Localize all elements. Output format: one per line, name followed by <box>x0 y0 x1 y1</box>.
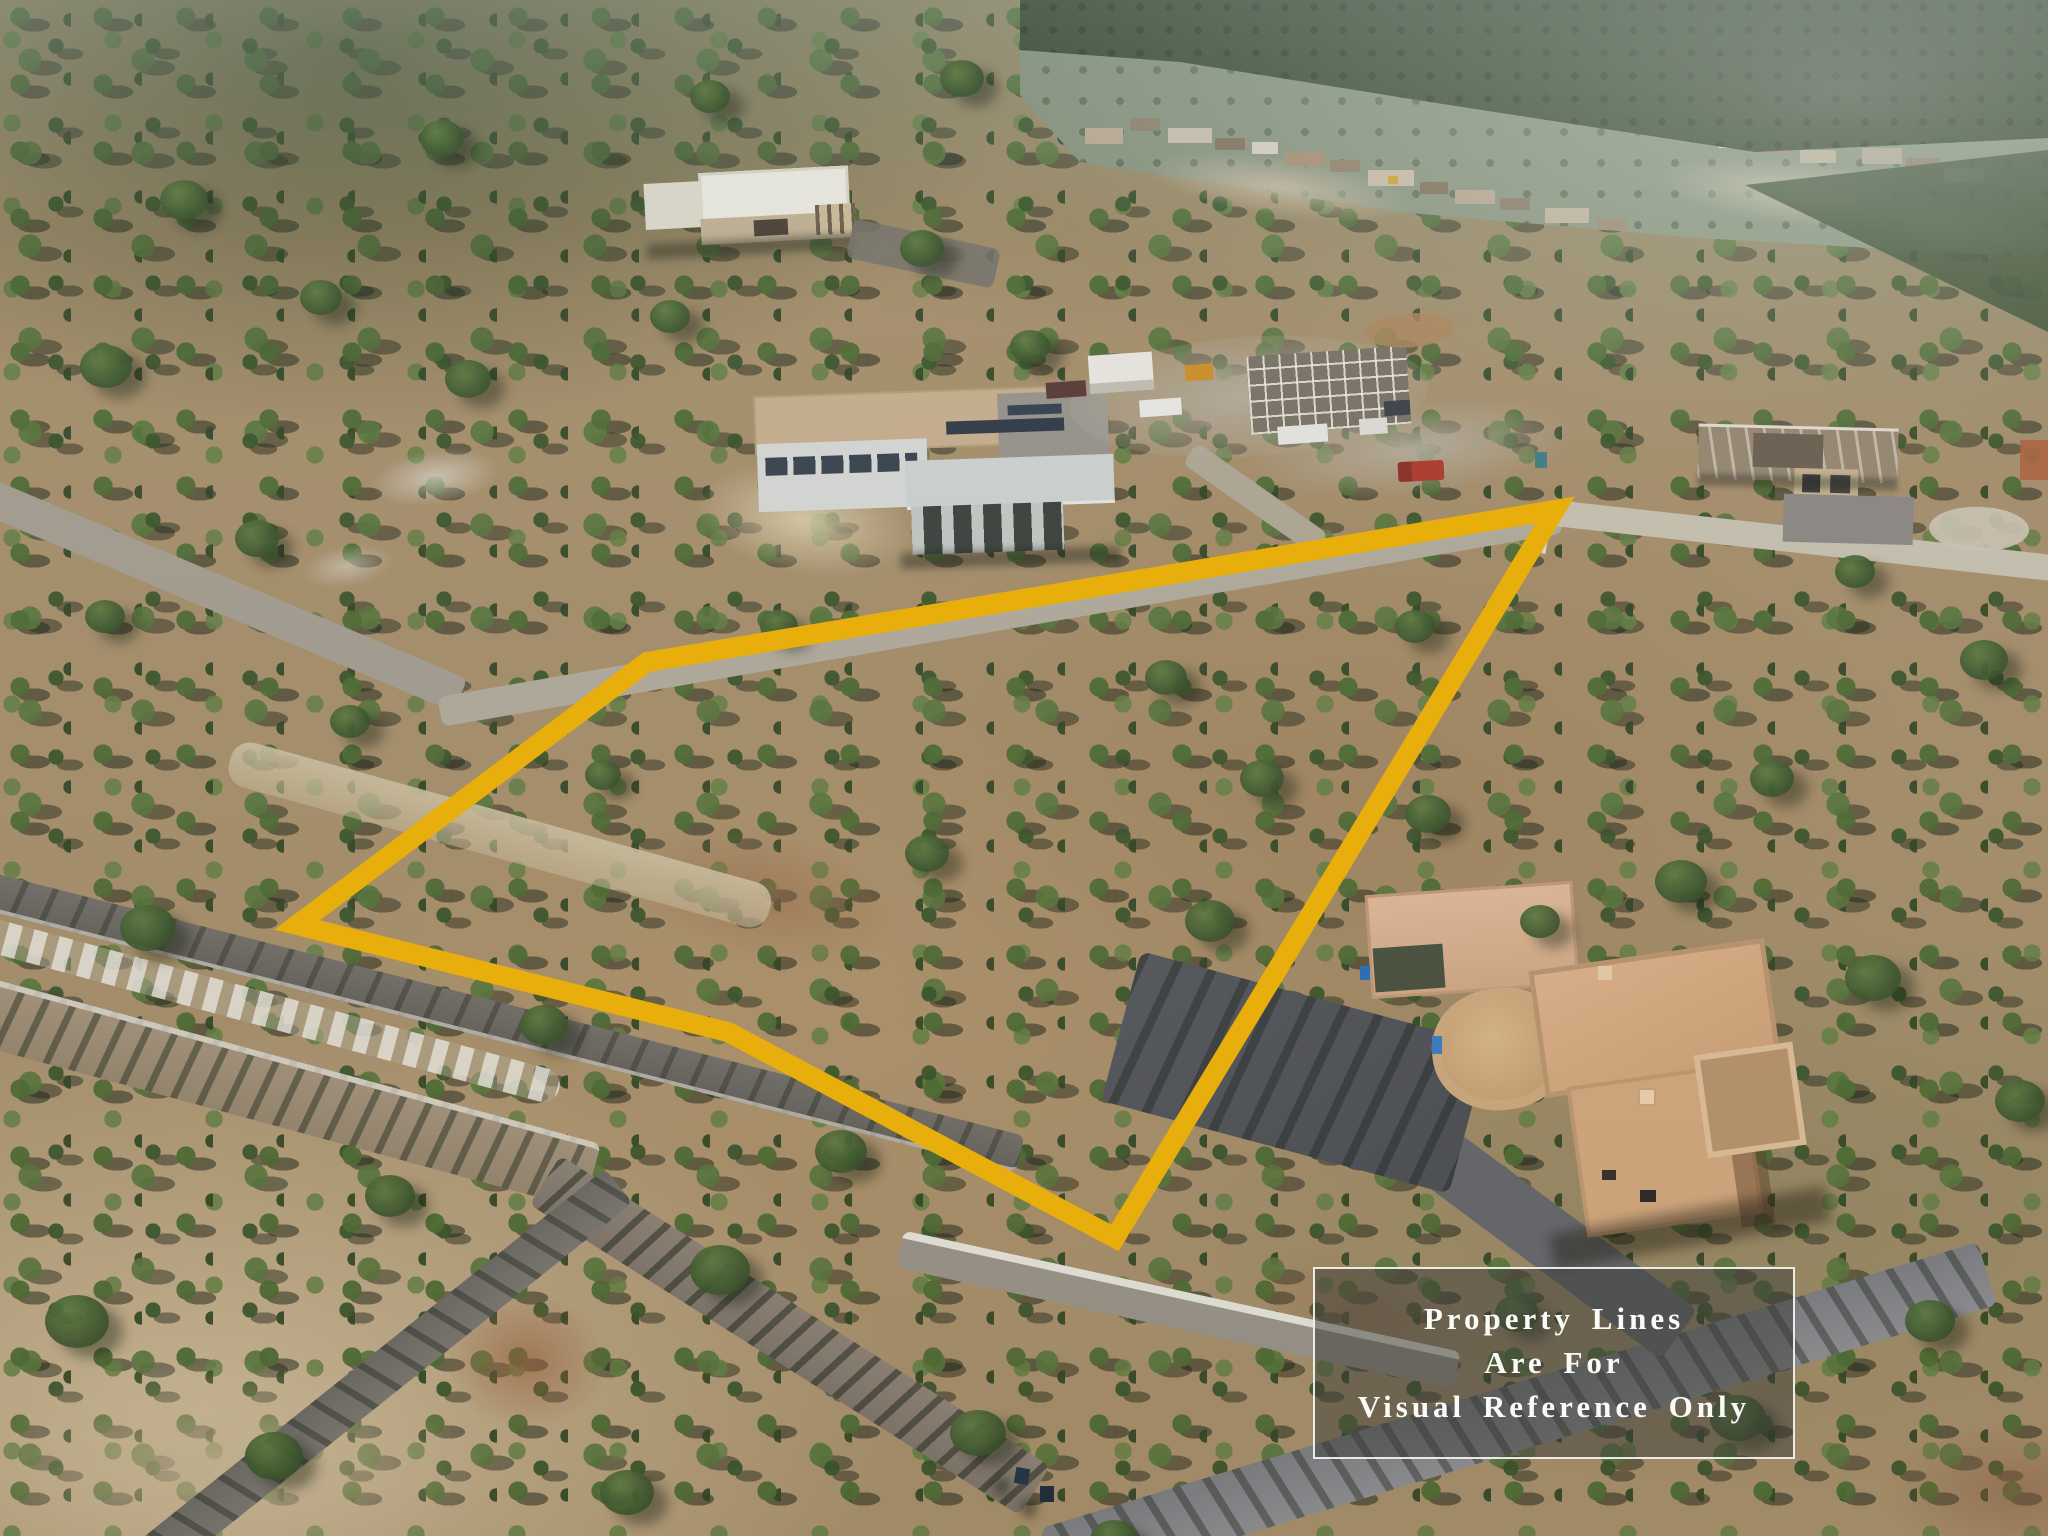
aerial-photo-stage: Property Lines Are For Visual Reference … <box>0 0 2048 1536</box>
notice-line-1: Property Lines <box>1424 1297 1684 1341</box>
notice-box: Property Lines Are For Visual Reference … <box>1313 1267 1795 1459</box>
notice-line-2: Are For <box>1484 1341 1623 1385</box>
property-outline-polygon <box>297 510 1555 1238</box>
notice-line-3: Visual Reference Only <box>1358 1385 1750 1429</box>
